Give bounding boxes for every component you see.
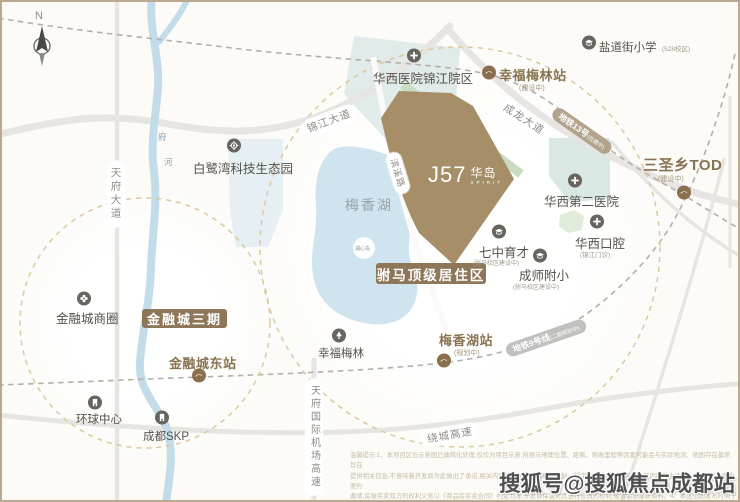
poi-yandaojie-primary: 盐道街小学 [599,39,657,55]
school-icon [582,36,596,55]
banner-financial-city-phase3: 金融城三期 [142,309,227,328]
station-meixianghu-sub: (规划中) [454,348,480,358]
poi-jinrongcheng-business: 金融城商圈 [56,308,119,327]
poi-huaxi-stomatology-sub: (锦江门诊) [580,249,610,259]
tech-park-icon [227,139,241,158]
hospital-icon [407,49,421,68]
poi-yandaojie-primary-sub: (528校区) [662,43,690,53]
station-sanshengxiang-tod: 三圣乡TOD [643,154,722,175]
metro-icon [482,66,496,85]
metro-icon [677,186,691,205]
poi-chengdu-skp: 成都SKP [143,428,189,444]
landmark-icon [155,411,169,430]
hospital-icon [590,215,604,234]
station-sanshengxiang-tod-sub: (建设中) [658,174,684,184]
j57-logo: J57 华岛 SPIRIT [428,164,503,186]
poi-xingfu-meilin-park: 幸福梅林 [318,345,364,361]
compass: N [24,10,60,71]
banner-fuma-residence: 驸马顶级居住区 [376,263,486,284]
station-xingfumeilin: 幸福梅林站 [499,65,567,84]
road-label-tianfu-avenue: 天府大道 [108,161,125,227]
poi-huaxi-second-hospital: 华西第二医院 [544,191,619,210]
road-label-tianfu-airport-expressway: 天府国际机场高速 [306,379,323,495]
north-label: N [35,10,60,22]
school-icon [492,225,506,244]
watermark: 搜狐号@搜狐焦点成都站 [499,467,735,498]
river-label-he: 河 [164,156,173,168]
compass-needle-icon [24,22,60,66]
map-canvas: N J57 华岛 SPIRIT 金融城三期 驸马顶级居住区 盐道街小学(528校… [0,0,740,502]
base-map [2,2,740,502]
metro-icon [437,354,451,373]
area-label-meixiang-lake: 梅香湖 [345,195,393,215]
hospital-icon [568,174,582,193]
poi-huaxi-hospital-jinjiang: 华西医院锦江院区 [373,68,473,87]
station-xingfumeilin-sub: (建设中) [519,83,545,93]
station-meixianghu: 梅香湖站 [439,330,493,349]
logo-cn-text: 华岛 [470,167,503,180]
poi-bailuwan-tech-park: 白鹭湾科技生态园 [193,158,293,177]
logo-main-text: J57 [428,164,466,186]
river-label-fu: 府 [158,131,167,143]
poi-qizhong-yucai-sub: (驸马校区建设中) [473,258,519,267]
poi-chengshi-fuxiao-sub: (驸马校区建设中) [513,282,559,291]
logo-spirit-text: SPIRIT [470,180,503,186]
station-jinrongcheng-east: 金融城东站 [169,353,237,372]
poi-global-center: 环球中心 [76,411,122,427]
area-label-huxin-island: 湖心岛 [355,245,370,252]
